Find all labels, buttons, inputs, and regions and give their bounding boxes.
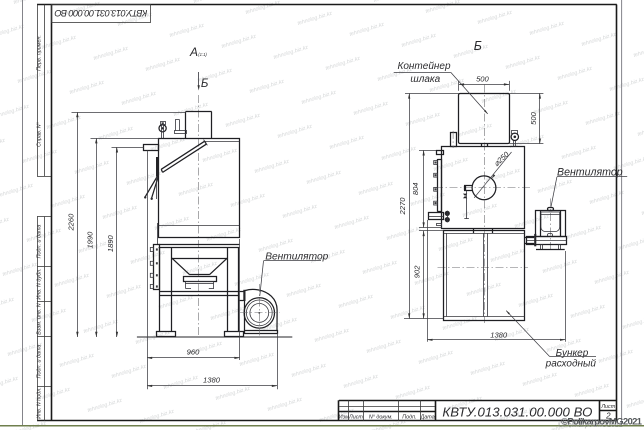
svg-text:Подп. и дата: Подп. и дата bbox=[37, 225, 43, 259]
svg-text:tehnolog.biz.kz: tehnolog.biz.kz bbox=[566, 225, 602, 241]
svg-text:©PolikarpovMG2021: ©PolikarpovMG2021 bbox=[558, 421, 623, 429]
svg-text:tehnolog.biz.kz: tehnolog.biz.kz bbox=[59, 353, 95, 369]
svg-text:tehnolog.biz.kz: tehnolog.biz.kz bbox=[202, 148, 238, 164]
svg-text:tehnolog.biz.kz: tehnolog.biz.kz bbox=[93, 46, 129, 62]
svg-text:tehnolog.biz.kz: tehnolog.biz.kz bbox=[306, 170, 342, 186]
svg-text:tehnolog.biz.kz: tehnolog.biz.kz bbox=[41, 35, 77, 51]
svg-text:500: 500 bbox=[476, 74, 489, 83]
svg-text:tehnolog.biz.kz: tehnolog.biz.kz bbox=[221, 34, 257, 50]
svg-text:tehnolog.biz.kz: tehnolog.biz.kz bbox=[0, 58, 1, 74]
svg-text:Контейнер: Контейнер bbox=[397, 61, 450, 72]
svg-text:Лист: Лист bbox=[348, 415, 363, 421]
svg-text:tehnolog.biz.kz: tehnolog.biz.kz bbox=[329, 135, 365, 151]
svg-text:tehnolog.biz.kz: tehnolog.biz.kz bbox=[273, 45, 309, 61]
svg-text:tehnolog.biz.kz: tehnolog.biz.kz bbox=[130, 250, 166, 266]
svg-text:tehnolog.biz.kz: tehnolog.biz.kz bbox=[395, 385, 431, 401]
svg-text:tehnolog.biz.kz: tehnolog.biz.kz bbox=[169, 23, 205, 39]
svg-text:960: 960 bbox=[187, 348, 200, 357]
svg-text:Перв. примен.: Перв. примен. bbox=[37, 35, 43, 71]
svg-text:Бункер: Бункер bbox=[556, 348, 589, 359]
svg-text:tehnolog.biz.kz: tehnolog.biz.kz bbox=[589, 190, 625, 206]
svg-text:Лист: Лист bbox=[600, 404, 615, 410]
svg-text:tehnolog.biz.kz: tehnolog.biz.kz bbox=[609, 77, 644, 93]
svg-text:tehnolog.biz.kz: tehnolog.biz.kz bbox=[405, 112, 441, 128]
svg-text:tehnolog.biz.kz: tehnolog.biz.kz bbox=[570, 304, 606, 320]
svg-text:tehnolog.biz.kz: tehnolog.biz.kz bbox=[557, 66, 593, 82]
svg-text:tehnolog.biz.kz: tehnolog.biz.kz bbox=[254, 159, 290, 175]
svg-text:расходный: расходный bbox=[545, 359, 597, 370]
svg-text:tehnolog.biz.kz: tehnolog.biz.kz bbox=[581, 32, 617, 48]
svg-text:tehnolog.biz.kz: tehnolog.biz.kz bbox=[245, 0, 281, 16]
svg-text:tehnolog.biz.kz: tehnolog.biz.kz bbox=[163, 375, 199, 391]
svg-text:tehnolog.biz.kz: tehnolog.biz.kz bbox=[622, 315, 644, 331]
svg-text:tehnolog.biz.kz: tehnolog.biz.kz bbox=[26, 228, 62, 244]
svg-text:tehnolog.biz.kz: tehnolog.biz.kz bbox=[325, 56, 361, 72]
svg-text:tehnolog.biz.kz: tehnolog.biz.kz bbox=[2, 262, 38, 278]
svg-text:tehnolog.biz.kz: tehnolog.biz.kz bbox=[277, 124, 313, 140]
svg-text:tehnolog.biz.kz: tehnolog.biz.kz bbox=[173, 102, 209, 118]
svg-text:tehnolog.biz.kz: tehnolog.biz.kz bbox=[401, 33, 437, 49]
svg-text:Дата: Дата bbox=[419, 415, 434, 421]
svg-text:tehnolog.biz.kz: tehnolog.biz.kz bbox=[366, 339, 402, 355]
svg-text:tehnolog.biz.kz: tehnolog.biz.kz bbox=[50, 194, 86, 210]
svg-text:tehnolog.biz.kz: tehnolog.biz.kz bbox=[0, 297, 15, 313]
svg-text:tehnolog.biz.kz: tehnolog.biz.kz bbox=[0, 376, 19, 392]
svg-text:tehnolog.biz.kz: tehnolog.biz.kz bbox=[158, 295, 194, 311]
svg-text:tehnolog.biz.kz: tehnolog.biz.kz bbox=[637, 122, 644, 138]
svg-text:tehnolog.biz.kz: tehnolog.biz.kz bbox=[574, 383, 610, 399]
svg-text:tehnolog.biz.kz: tehnolog.biz.kz bbox=[505, 55, 541, 71]
svg-text:1380: 1380 bbox=[490, 330, 508, 339]
svg-text:tehnolog.biz.kz: tehnolog.biz.kz bbox=[215, 386, 251, 402]
svg-text:tehnolog.biz.kz: tehnolog.biz.kz bbox=[286, 283, 322, 299]
svg-text:tehnolog.biz.kz: tehnolog.biz.kz bbox=[145, 57, 181, 73]
svg-text:tehnolog.biz.kz: tehnolog.biz.kz bbox=[0, 24, 25, 40]
svg-text:tehnolog.biz.kz: tehnolog.biz.kz bbox=[334, 215, 370, 231]
svg-text:tehnolog.biz.kz: tehnolog.biz.kz bbox=[343, 374, 379, 390]
svg-text:tehnolog.biz.kz: tehnolog.biz.kz bbox=[349, 22, 385, 38]
svg-text:tehnolog.biz.kz: tehnolog.biz.kz bbox=[267, 397, 303, 413]
svg-text:tehnolog.biz.kz: tehnolog.biz.kz bbox=[386, 226, 422, 242]
svg-text:tehnolog.biz.kz: tehnolog.biz.kz bbox=[54, 273, 90, 289]
svg-text:tehnolog.biz.kz: tehnolog.biz.kz bbox=[362, 260, 398, 276]
svg-text:N° докум.: N° докум. bbox=[369, 415, 393, 421]
svg-text:Подп.: Подп. bbox=[402, 415, 416, 421]
svg-text:tehnolog.biz.kz: tehnolog.biz.kz bbox=[542, 259, 578, 275]
svg-text:tehnolog.biz.kz: tehnolog.biz.kz bbox=[22, 149, 58, 165]
svg-text:Взам. инв. N: Взам. инв. N bbox=[37, 303, 43, 335]
svg-text:tehnolog.biz.kz: tehnolog.biz.kz bbox=[0, 138, 6, 154]
svg-text:tehnolog.biz.kz: tehnolog.biz.kz bbox=[225, 113, 261, 129]
svg-text:tehnolog.biz.kz: tehnolog.biz.kz bbox=[425, 0, 461, 15]
svg-text:tehnolog.biz.kz: tehnolog.biz.kz bbox=[249, 79, 285, 95]
svg-text:500: 500 bbox=[529, 111, 538, 124]
svg-text:tehnolog.biz.kz: tehnolog.biz.kz bbox=[561, 145, 597, 161]
svg-text:⌀250: ⌀250 bbox=[492, 149, 511, 168]
svg-text:Инв. N подл.: Инв. N подл. bbox=[37, 387, 43, 419]
svg-text:Б: Б bbox=[474, 39, 482, 53]
svg-text:tehnolog.biz.kz: tehnolog.biz.kz bbox=[358, 181, 394, 197]
svg-text:tehnolog.biz.kz: tehnolog.biz.kz bbox=[481, 89, 517, 105]
svg-text:Подп. и дата: Подп. и дата bbox=[37, 345, 43, 379]
svg-text:А: А bbox=[189, 45, 198, 59]
svg-text:tehnolog.biz.kz: tehnolog.biz.kz bbox=[154, 216, 190, 232]
svg-text:tehnolog.biz.kz: tehnolog.biz.kz bbox=[291, 363, 327, 379]
svg-text:tehnolog.biz.kz: tehnolog.biz.kz bbox=[239, 352, 275, 368]
svg-text:tehnolog.biz.kz: tehnolog.biz.kz bbox=[353, 101, 389, 117]
svg-text:1890: 1890 bbox=[106, 234, 115, 252]
svg-text:tehnolog.biz.kz: tehnolog.biz.kz bbox=[139, 409, 175, 425]
svg-text:tehnolog.biz.kz: tehnolog.biz.kz bbox=[98, 126, 134, 142]
svg-text:Инв. N дубл.: Инв. N дубл. bbox=[37, 268, 43, 299]
svg-text:tehnolog.biz.kz: tehnolog.biz.kz bbox=[522, 372, 558, 388]
svg-text:tehnolog.biz.kz: tehnolog.biz.kz bbox=[466, 282, 502, 298]
svg-text:tehnolog.biz.kz: tehnolog.biz.kz bbox=[518, 293, 554, 309]
svg-text:tehnolog.biz.kz: tehnolog.biz.kz bbox=[338, 294, 374, 310]
svg-text:tehnolog.biz.kz: tehnolog.biz.kz bbox=[0, 183, 34, 199]
svg-text:tehnolog.biz.kz: tehnolog.biz.kz bbox=[297, 11, 333, 27]
svg-text:tehnolog.biz.kz: tehnolog.biz.kz bbox=[83, 319, 119, 335]
svg-text:tehnolog.biz.kz: tehnolog.biz.kz bbox=[106, 284, 142, 300]
svg-text:шлака: шлака bbox=[410, 74, 440, 85]
svg-text:tehnolog.biz.kz: tehnolog.biz.kz bbox=[529, 21, 565, 37]
svg-text:tehnolog.biz.kz: tehnolog.biz.kz bbox=[0, 104, 30, 120]
svg-text:804: 804 bbox=[411, 182, 420, 195]
svg-text:(1:1): (1:1) bbox=[198, 52, 207, 57]
svg-text:tehnolog.biz.kz: tehnolog.biz.kz bbox=[470, 361, 506, 377]
svg-text:tehnolog.biz.kz: tehnolog.biz.kz bbox=[633, 43, 644, 59]
svg-text:Справ. N°: Справ. N° bbox=[37, 121, 43, 147]
svg-text:tehnolog.biz.kz: tehnolog.biz.kz bbox=[301, 90, 337, 106]
svg-text:tehnolog.biz.kz: tehnolog.biz.kz bbox=[514, 214, 550, 230]
svg-text:2270: 2270 bbox=[398, 197, 407, 216]
svg-text:tehnolog.biz.kz: tehnolog.biz.kz bbox=[111, 364, 147, 380]
svg-text:1990: 1990 bbox=[86, 231, 95, 249]
svg-text:tehnolog.biz.kz: tehnolog.biz.kz bbox=[206, 227, 242, 243]
svg-text:tehnolog.biz.kz: tehnolog.biz.kz bbox=[533, 100, 569, 116]
svg-text:tehnolog.biz.kz: tehnolog.biz.kz bbox=[87, 398, 123, 414]
svg-text:tehnolog.biz.kz: tehnolog.biz.kz bbox=[0, 217, 10, 233]
svg-text:tehnolog.biz.kz: tehnolog.biz.kz bbox=[462, 203, 498, 219]
svg-text:902: 902 bbox=[412, 265, 421, 278]
svg-text:2260: 2260 bbox=[67, 213, 76, 232]
svg-text:tehnolog.biz.kz: tehnolog.biz.kz bbox=[121, 91, 157, 107]
svg-text:tehnolog.biz.kz: tehnolog.biz.kz bbox=[477, 10, 513, 26]
svg-text:Б: Б bbox=[201, 78, 209, 90]
svg-text:tehnolog.biz.kz: tehnolog.biz.kz bbox=[453, 44, 489, 60]
svg-text:tehnolog.biz.kz: tehnolog.biz.kz bbox=[485, 168, 521, 184]
svg-text:1380: 1380 bbox=[203, 376, 221, 385]
svg-text:tehnolog.biz.kz: tehnolog.biz.kz bbox=[102, 205, 138, 221]
svg-text:tehnolog.biz.kz: tehnolog.biz.kz bbox=[314, 328, 350, 344]
svg-text:tehnolog.biz.kz: tehnolog.biz.kz bbox=[442, 316, 478, 332]
svg-text:tehnolog.biz.kz: tehnolog.biz.kz bbox=[381, 146, 417, 162]
svg-text:tehnolog.biz.kz: tehnolog.biz.kz bbox=[230, 193, 266, 209]
svg-text:tehnolog.biz.kz: tehnolog.biz.kz bbox=[178, 182, 214, 198]
svg-text:tehnolog.biz.kz: tehnolog.biz.kz bbox=[490, 248, 526, 264]
svg-text:tehnolog.biz.kz: tehnolog.biz.kz bbox=[69, 80, 105, 96]
svg-text:tehnolog.biz.kz: tehnolog.biz.kz bbox=[594, 270, 630, 286]
svg-text:Изм: Изм bbox=[339, 415, 349, 421]
svg-text:tehnolog.biz.kz: tehnolog.biz.kz bbox=[282, 204, 318, 220]
svg-text:tehnolog.biz.kz: tehnolog.biz.kz bbox=[457, 123, 493, 139]
svg-text:КВТУ.013.031.00.000 ВО: КВТУ.013.031.00.000 ВО bbox=[54, 8, 147, 18]
svg-text:tehnolog.biz.kz: tehnolog.biz.kz bbox=[74, 160, 110, 176]
svg-text:tehnolog.biz.kz: tehnolog.biz.kz bbox=[373, 0, 409, 4]
svg-text:tehnolog.biz.kz: tehnolog.biz.kz bbox=[418, 350, 454, 366]
svg-text:tehnolog.biz.kz: tehnolog.biz.kz bbox=[626, 394, 644, 410]
